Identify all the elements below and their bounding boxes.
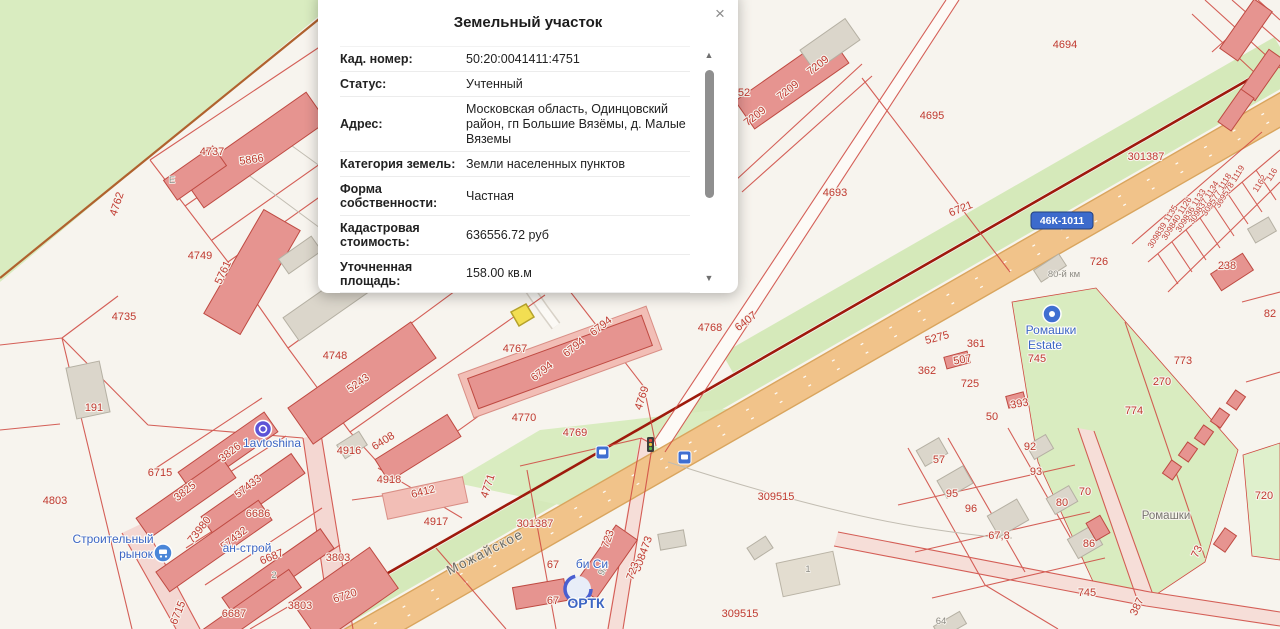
- map-label: 4769: [563, 427, 587, 439]
- map-label: 309515: [758, 491, 795, 503]
- traffic-light-icon: [647, 437, 654, 452]
- map-label: 80: [1056, 497, 1068, 509]
- map-label: 67: [547, 595, 559, 607]
- map-label: 4735: [112, 311, 136, 323]
- map-label: 191: [85, 402, 103, 414]
- map-label: 774: [1125, 405, 1143, 417]
- tire-shop-poi-icon[interactable]: [255, 421, 272, 438]
- map-label: 4803: [43, 495, 67, 507]
- popup-row-value: Земли населенных пунктов: [466, 157, 690, 172]
- map-label: 309515: [722, 608, 759, 620]
- popup-row-value: 158.00 кв.м: [466, 266, 690, 281]
- map-label: 67: [547, 559, 559, 571]
- map-label: 96: [965, 503, 977, 515]
- map-label: 4737: [200, 146, 224, 158]
- map-label: 301387: [517, 518, 554, 530]
- popup-row: Статус:Учтенный: [340, 72, 690, 97]
- map-label: 70: [1079, 486, 1091, 498]
- map-label: 4748: [323, 350, 347, 362]
- map-label: ан-строй: [223, 541, 272, 555]
- map-label: 4770: [512, 412, 536, 424]
- map-label: Ромашки: [1142, 510, 1191, 522]
- map-label: 726: [1090, 256, 1108, 268]
- popup-row-label: Кадастровая стоимость:: [340, 221, 458, 250]
- map-label: 82: [1264, 308, 1276, 320]
- map-label: 4694: [1053, 39, 1077, 51]
- map-label: 1avtoshina: [243, 436, 301, 450]
- popup-row: Категория земель:Земли населенных пункто…: [340, 152, 690, 177]
- map-label: Ромашки: [1026, 323, 1077, 337]
- map-label: 64: [936, 616, 947, 627]
- map-label: 725: [961, 378, 979, 390]
- popup-row-value: Частная: [466, 189, 690, 204]
- scrollbar-thumb[interactable]: [705, 70, 714, 198]
- map-label: 270: [1153, 376, 1171, 388]
- popup-title: Земельный участок: [318, 14, 738, 31]
- popup-row: Адрес:Московская область, Одинцовский ра…: [340, 97, 690, 152]
- map-label: 4917: [424, 516, 448, 528]
- map-label: Строительный: [72, 532, 153, 546]
- popup-row: Уточненная площадь:158.00 кв.м: [340, 255, 690, 294]
- market-poi-icon[interactable]: [154, 544, 172, 562]
- map-label: 67,8: [988, 530, 1009, 542]
- map-label: 52: [738, 87, 750, 99]
- map-label: 745: [1028, 353, 1046, 365]
- map-label: 86: [1083, 538, 1095, 550]
- map-label: E: [169, 175, 175, 186]
- map-label: 57: [933, 454, 945, 466]
- popup-row-label: Адрес:: [340, 117, 458, 131]
- map-label: 361: [967, 338, 985, 350]
- map-label: 2: [271, 570, 276, 581]
- popup-row-label: Уточненная площадь:: [340, 260, 458, 289]
- road-shield-label: 46К-1011: [1040, 215, 1085, 227]
- map-label: 3803: [288, 600, 312, 612]
- map-label: 92: [1024, 441, 1036, 453]
- cadastral-map-app: 4737586647624749576147354748524319148036…: [0, 0, 1280, 629]
- popup-row-value: Московская область, Одинцовский район, г…: [466, 102, 690, 147]
- map-label: 720: [1255, 490, 1273, 502]
- map-label: 238: [1218, 260, 1236, 272]
- map-label: Estate: [1028, 338, 1062, 352]
- map-label: 4767: [503, 343, 527, 355]
- popup-row-label: Статус:: [340, 77, 458, 91]
- bus-stop-icon[interactable]: [596, 446, 609, 459]
- map-label: 745: [1078, 587, 1096, 599]
- map-label: ОРТК: [567, 595, 605, 611]
- map-label: 6686: [246, 508, 270, 520]
- map-label: 93: [1030, 466, 1042, 478]
- map-label: 4918: [377, 474, 401, 486]
- map-label: 4695: [920, 110, 944, 122]
- popup-row: Кадастровая стоимость:636556.72 руб: [340, 216, 690, 255]
- map-label: 4768: [698, 322, 722, 334]
- close-icon[interactable]: ×: [711, 5, 729, 23]
- popup-row-value: 50:20:0041411:4751: [466, 52, 690, 67]
- scroll-up-icon[interactable]: ▲: [702, 50, 716, 60]
- map-label: 80-й км: [1048, 269, 1080, 280]
- map-label: 362: [918, 365, 936, 377]
- romashki-estate-poi-icon[interactable]: [1043, 305, 1061, 323]
- popup-row-value: Учтенный: [466, 77, 690, 92]
- map-label: 4916: [337, 445, 361, 457]
- map-label: 3803: [326, 552, 350, 564]
- popup-row-label: Категория земель:: [340, 157, 458, 171]
- popup-row: Кад. номер:50:20:0041411:4751: [340, 46, 690, 72]
- map-label: 6687: [222, 608, 246, 620]
- map-label: 301387: [1128, 151, 1165, 163]
- parcel-info-popup: Земельный участок × Кад. номер:50:20:004…: [318, 0, 738, 293]
- popup-row-value: 636556.72 руб: [466, 228, 690, 243]
- popup-attributes-list: Кад. номер:50:20:0041411:4751Статус:Учте…: [340, 46, 690, 293]
- popup-row: Форма собственности:Частная: [340, 177, 690, 216]
- map-label: 4693: [823, 187, 847, 199]
- map-label: 6715: [148, 467, 172, 479]
- map-label: 773: [1174, 355, 1192, 367]
- map-label: би Си: [576, 557, 608, 571]
- map-label: 4749: [188, 250, 212, 262]
- map-label: рынок: [119, 547, 154, 561]
- map-label: 95: [946, 488, 958, 500]
- scroll-down-icon[interactable]: ▼: [702, 273, 716, 283]
- popup-row-label: Кад. номер:: [340, 52, 458, 66]
- map-label: 50: [986, 411, 998, 423]
- bus-stop-icon[interactable]: [678, 451, 691, 464]
- map-label: 1: [805, 564, 810, 575]
- popup-row-label: Форма собственности:: [340, 182, 458, 211]
